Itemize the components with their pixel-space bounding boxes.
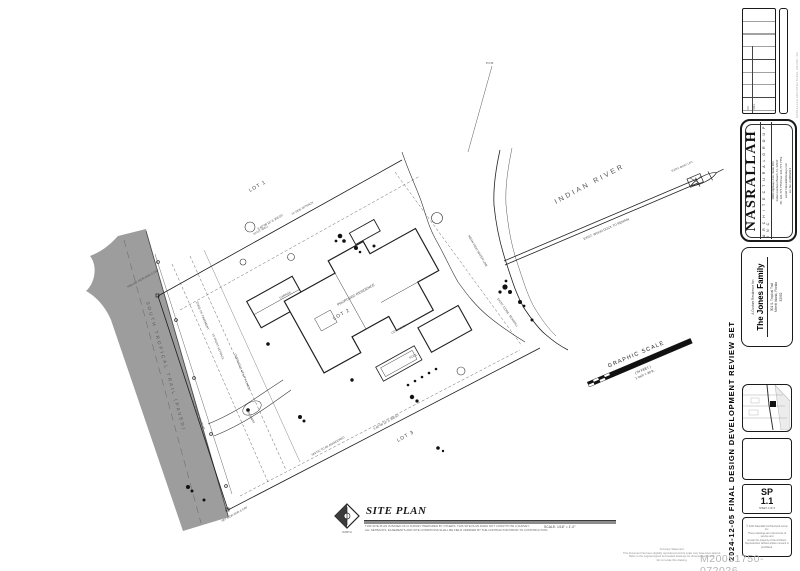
project-address-line: 32952 bbox=[779, 293, 783, 302]
copyright-line: These drawings are instruments of servic… bbox=[745, 532, 789, 539]
site-plan-drawing: SOUTH TROPICAL TRAIL (PAVED) bbox=[0, 0, 800, 571]
reference-line bbox=[468, 66, 492, 152]
drawing-title: SITE PLAN bbox=[366, 505, 426, 517]
revision-col-date: DATE bbox=[753, 104, 756, 110]
title-notes: THIS SITE PLAN IS BASED ON A SURVEY PREP… bbox=[365, 525, 550, 533]
annotation: OVERHEAD UTILITY LINES bbox=[233, 353, 251, 390]
north-arrow-label: NORTH bbox=[334, 531, 360, 534]
firm-block-content: NASRALLAH A R C H I T E C T U R A L G R … bbox=[744, 122, 794, 239]
stamp-bar bbox=[779, 8, 788, 114]
drawing-scale: SCALE: 1/16" = 1'-0" bbox=[544, 525, 575, 529]
road-pavement bbox=[86, 229, 229, 531]
dock bbox=[504, 174, 703, 265]
site-marker bbox=[770, 401, 776, 407]
sheet-number: 1.1 bbox=[761, 497, 774, 507]
annotation: EXIST. BOAT LIFT bbox=[671, 160, 694, 173]
annotation: 25' FRONT SETBACK bbox=[211, 333, 225, 360]
title-note-line: ALL SETBACKS, EASEMENTS AND SITE CONDITI… bbox=[365, 529, 550, 533]
north-arrow-icon bbox=[334, 503, 360, 531]
lot1-label: LOT 1 bbox=[248, 179, 267, 193]
lot3-label: LOT 3 bbox=[396, 429, 415, 443]
project-prefix: A Custom Residence for: bbox=[751, 279, 755, 314]
project-divider bbox=[767, 257, 768, 337]
copyright-box: © 2024 Nasrallah Architectural Group Inc… bbox=[742, 517, 792, 557]
annotation: EDGE OF PAVEMENT bbox=[195, 301, 210, 331]
watermark: M20051750-072026 bbox=[700, 553, 800, 571]
firm-name: NASRALLAH bbox=[745, 130, 759, 231]
drawing-sheet: SOUTH TROPICAL TRAIL (PAVED) bbox=[0, 0, 800, 571]
sheet-number-note: SHEET 1 OF 8 bbox=[759, 507, 775, 510]
project-name: The Jones Family bbox=[756, 263, 765, 330]
review-set-label: 2024-12-05 FINAL DESIGN DEVELOPMENT REVI… bbox=[727, 321, 736, 561]
project-block-content: A Custom Residence for: The Jones Family… bbox=[745, 250, 789, 344]
boat-lift bbox=[689, 165, 726, 190]
sheet-edge-text: NASRALLAH ARCHITECTURAL GROUP INC bbox=[796, 52, 799, 118]
annotation: DRIVEWAY bbox=[245, 409, 256, 425]
graphic-scale: GRAPHIC SCALE ( IN FEET ) 1 inch = 30 ft… bbox=[584, 330, 697, 398]
seal-box bbox=[742, 438, 792, 480]
annotation: EXIST. CONC. SEAWALL bbox=[496, 297, 519, 328]
sheet-number-box: SP 1.1 SHEET 1 OF 8 bbox=[742, 484, 792, 514]
copyright-line: Reproduction without written consent is … bbox=[745, 542, 789, 549]
annotation: P.O.B. bbox=[486, 61, 494, 65]
revision-col-no: NO. bbox=[747, 106, 750, 110]
annotation: 10' SIDE SETBACK bbox=[291, 200, 315, 216]
building-footprints bbox=[242, 204, 473, 420]
location-map bbox=[742, 384, 792, 432]
revision-table bbox=[742, 8, 776, 114]
annotation: MEAN HIGH WATER LINE bbox=[467, 235, 488, 268]
titlebar: NORTH SITE PLAN THIS SITE PLAN IS BASED … bbox=[334, 503, 594, 548]
firm-license-line: Lic. No. AA0002613 bbox=[789, 168, 793, 194]
river-label: INDIAN RIVER bbox=[554, 163, 626, 206]
annotation: SEPTIC TO BE ABANDONED bbox=[311, 435, 346, 457]
copyright-line: © 2024 Nasrallah Architectural Group Inc… bbox=[745, 525, 789, 532]
firm-tagline: A R C H I T E C T U R A L G R O U P I N … bbox=[760, 122, 771, 239]
